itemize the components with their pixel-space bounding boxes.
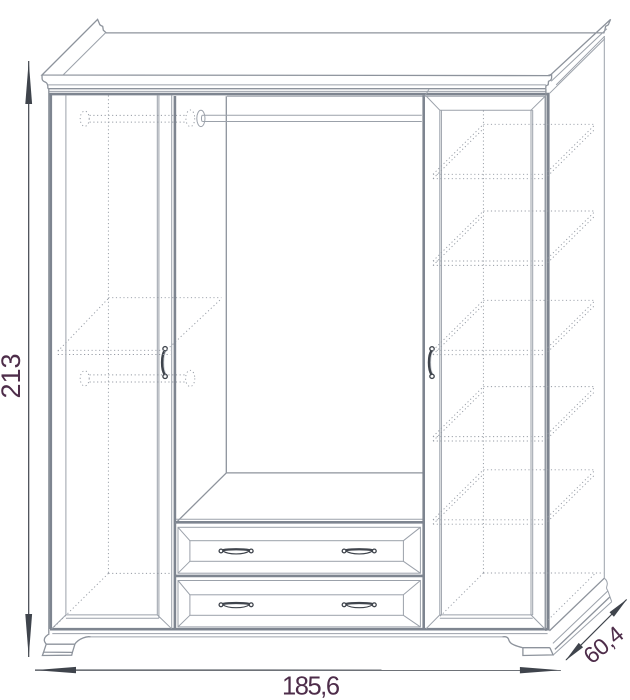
svg-text:213: 213 xyxy=(0,354,26,399)
svg-text:60,4: 60,4 xyxy=(578,620,629,668)
svg-text:185,6: 185,6 xyxy=(282,673,340,700)
